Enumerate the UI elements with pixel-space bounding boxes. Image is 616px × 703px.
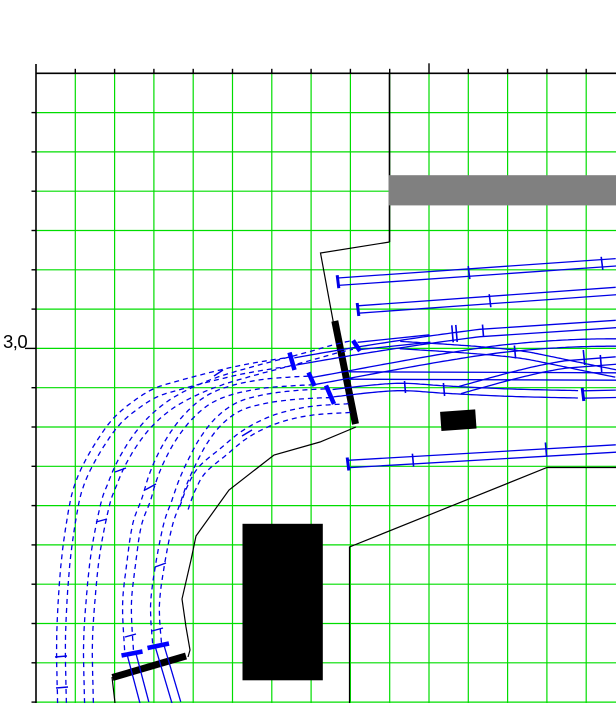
svg-text:3,0: 3,0 (3, 331, 27, 352)
